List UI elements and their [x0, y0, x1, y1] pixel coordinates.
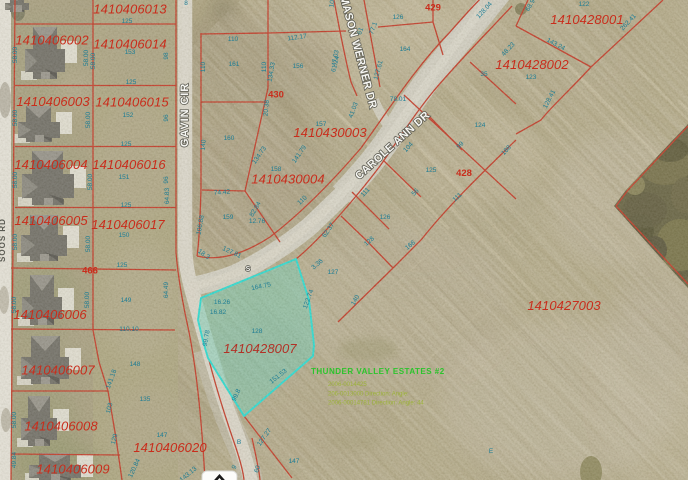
- svg-text:122: 122: [579, 1, 590, 8]
- svg-text:1410427003: 1410427003: [527, 298, 601, 313]
- svg-text:206-0013000 Direction: Angle:: 206-0013000 Direction: Angle:: [328, 392, 409, 398]
- svg-text:110.10: 110.10: [119, 326, 139, 333]
- svg-text:110: 110: [261, 61, 268, 72]
- svg-text:110: 110: [200, 61, 207, 72]
- svg-text:127: 127: [328, 269, 339, 276]
- svg-text:140: 140: [200, 139, 208, 151]
- svg-text:153: 153: [125, 49, 136, 56]
- svg-text:2006-0014425: 2006-0014425: [328, 382, 367, 388]
- svg-text:1410406009: 1410406009: [36, 462, 109, 477]
- svg-text:125: 125: [121, 141, 132, 148]
- svg-text:58.00: 58.00: [84, 291, 91, 308]
- svg-text:96: 96: [163, 114, 170, 122]
- svg-text:125: 125: [122, 18, 133, 25]
- svg-text:78.01: 78.01: [390, 96, 407, 103]
- svg-text:428: 428: [456, 168, 472, 179]
- svg-text:128: 128: [252, 328, 263, 335]
- svg-text:20.38: 20.38: [263, 99, 271, 116]
- svg-text:16.26: 16.26: [214, 299, 231, 306]
- svg-text:156: 156: [293, 63, 304, 70]
- svg-text:98: 98: [163, 52, 170, 60]
- svg-text:58.00: 58.00: [12, 171, 19, 188]
- svg-text:125: 125: [121, 202, 132, 209]
- svg-text:1410406013: 1410406013: [93, 2, 167, 17]
- svg-text:1410406008: 1410406008: [24, 419, 98, 434]
- svg-text:1410406002: 1410406002: [15, 33, 89, 48]
- svg-text:GAVIN CIR: GAVIN CIR: [179, 83, 191, 147]
- svg-text:1410430004: 1410430004: [251, 172, 324, 187]
- svg-text:1410406003: 1410406003: [16, 94, 90, 109]
- svg-text:THUNDER VALLEY ESTATES #2: THUNDER VALLEY ESTATES #2: [311, 367, 445, 376]
- svg-text:125: 125: [117, 262, 128, 269]
- svg-text:125: 125: [426, 167, 437, 174]
- svg-text:35: 35: [480, 71, 488, 78]
- svg-text:430: 430: [268, 90, 284, 101]
- svg-text:96: 96: [163, 176, 170, 184]
- svg-text:126: 126: [380, 214, 391, 221]
- svg-text:148: 148: [130, 361, 141, 368]
- svg-text:64.49: 64.49: [163, 281, 170, 298]
- svg-text:147: 147: [289, 458, 300, 465]
- svg-text:1410406015: 1410406015: [95, 95, 169, 110]
- svg-text:58.00: 58.00: [11, 411, 18, 428]
- svg-text:150: 150: [119, 232, 130, 239]
- svg-text:135: 135: [140, 396, 151, 403]
- svg-text:124: 124: [475, 122, 486, 129]
- svg-text:12.76: 12.76: [249, 218, 266, 225]
- svg-text:429: 429: [425, 3, 441, 14]
- svg-text:1410428001: 1410428001: [550, 12, 623, 27]
- svg-text:152: 152: [123, 112, 134, 119]
- svg-text:58.00: 58.00: [12, 233, 19, 250]
- svg-text:147: 147: [157, 432, 168, 439]
- svg-text:64.83: 64.83: [164, 187, 171, 204]
- svg-text:58.00: 58.00: [12, 46, 19, 63]
- svg-text:58.00: 58.00: [12, 109, 19, 126]
- svg-text:1410406007: 1410406007: [21, 363, 95, 378]
- svg-text:58.00: 58.00: [83, 49, 90, 66]
- svg-text:123: 123: [526, 74, 537, 81]
- svg-text:49.84: 49.84: [11, 451, 18, 468]
- svg-text:159: 159: [223, 214, 234, 221]
- svg-text:58.00: 58.00: [90, 52, 97, 69]
- svg-text:1410406004: 1410406004: [14, 157, 87, 172]
- svg-text:58.00: 58.00: [85, 235, 92, 252]
- svg-text:160: 160: [224, 135, 235, 142]
- svg-text:126: 126: [393, 14, 404, 21]
- svg-text:B: B: [237, 439, 241, 446]
- svg-text:1410406020: 1410406020: [133, 440, 207, 455]
- svg-text:1410430003: 1410430003: [293, 125, 367, 140]
- svg-text:74.42: 74.42: [214, 189, 231, 197]
- svg-text:1410428007: 1410428007: [223, 341, 297, 356]
- svg-text:1410406017: 1410406017: [91, 217, 165, 232]
- svg-text:8: 8: [184, 0, 188, 7]
- svg-text:1410406005: 1410406005: [14, 213, 88, 228]
- svg-text:110: 110: [228, 36, 239, 43]
- svg-text:E: E: [489, 448, 494, 455]
- svg-text:16.82: 16.82: [210, 309, 227, 316]
- svg-text:157: 157: [316, 121, 327, 128]
- svg-text:151: 151: [119, 174, 130, 181]
- svg-text:164: 164: [400, 46, 411, 53]
- svg-text:125: 125: [126, 79, 137, 86]
- svg-text:58.00: 58.00: [87, 173, 94, 190]
- svg-text:158: 158: [271, 166, 282, 173]
- svg-text:58.00: 58.00: [11, 296, 18, 313]
- svg-text:S: S: [246, 266, 251, 273]
- svg-text:2006-00014781 Direction: Angle: 2006-00014781 Direction: Angle: 44: [328, 401, 424, 407]
- svg-text:SOOS RD: SOOS RD: [0, 218, 7, 262]
- svg-text:466: 466: [82, 266, 98, 277]
- svg-text:1410428002: 1410428002: [495, 57, 569, 72]
- svg-text:1410406006: 1410406006: [13, 307, 87, 322]
- svg-text:149: 149: [121, 297, 132, 304]
- svg-text:1410406016: 1410406016: [92, 157, 166, 172]
- svg-text:161: 161: [229, 61, 240, 68]
- svg-text:58.00: 58.00: [85, 111, 92, 128]
